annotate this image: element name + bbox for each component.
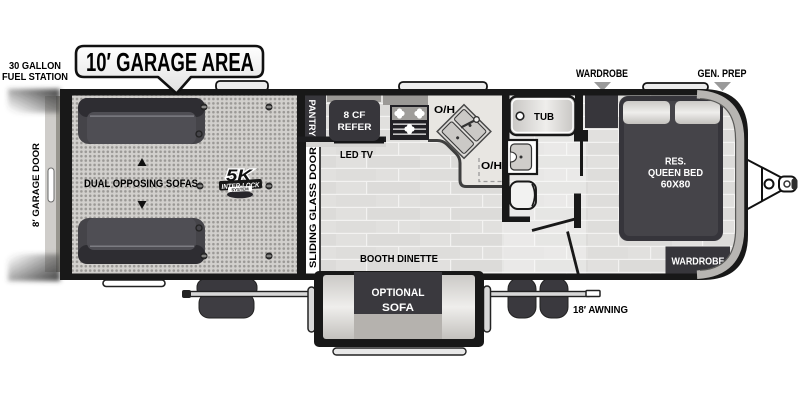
svg-text:RES.: RES. [665,157,686,168]
svg-text:REFER: REFER [338,122,372,133]
svg-text:OPTIONAL: OPTIONAL [372,287,425,299]
svg-text:10′ GARAGE AREA: 10′ GARAGE AREA [86,47,254,77]
svg-text:18′ AWNING: 18′ AWNING [573,304,628,316]
svg-text:SOFA: SOFA [382,302,414,314]
svg-text:SLIDING GLASS DOOR: SLIDING GLASS DOOR [308,147,319,268]
svg-text:8 CF: 8 CF [344,110,366,121]
svg-text:QUEEN BED: QUEEN BED [648,168,703,179]
svg-text:30 GALLON: 30 GALLON [9,61,61,72]
svg-text:LED TV: LED TV [340,149,373,161]
svg-text:TUB: TUB [534,111,554,123]
svg-text:O/H: O/H [481,161,502,172]
svg-text:GEN. PREP: GEN. PREP [698,68,747,80]
svg-text:WARDROBE: WARDROBE [672,257,725,268]
svg-text:8′ GARAGE DOOR: 8′ GARAGE DOOR [31,143,42,227]
svg-text:BOOTH DINETTE: BOOTH DINETTE [360,253,438,265]
svg-text:FUEL STATION: FUEL STATION [2,72,68,83]
svg-text:PANTRY: PANTRY [307,100,317,137]
svg-text:WARDROBE: WARDROBE [576,68,628,80]
svg-text:O/H: O/H [434,105,455,116]
svg-text:DUAL OPPOSING SOFAS: DUAL OPPOSING SOFAS [84,178,198,190]
svg-text:SYSTEM: SYSTEM [231,186,249,192]
svg-text:60X80: 60X80 [661,180,691,191]
